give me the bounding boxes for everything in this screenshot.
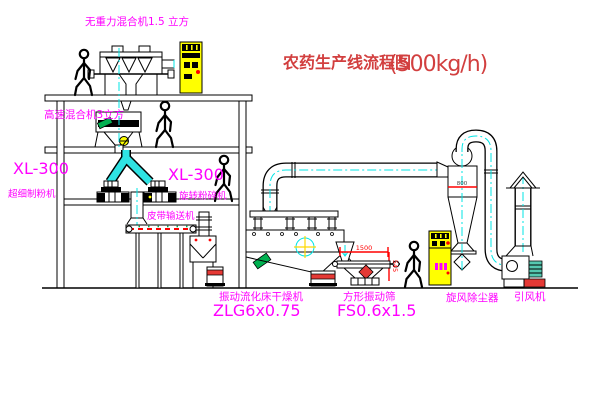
label-mill-left-model: XL-300 bbox=[13, 159, 69, 178]
control-cabinet-right bbox=[429, 231, 451, 285]
dim-cyclone-diameter: 800 bbox=[457, 181, 468, 187]
mill-right bbox=[144, 181, 176, 202]
label-mill-left-name: 超细制粉机 bbox=[8, 188, 56, 200]
label-dryer-model: ZLG6x0.75 bbox=[213, 301, 301, 320]
control-cabinet-top bbox=[180, 42, 202, 93]
page-title-capacity: (500kg/h) bbox=[389, 52, 487, 77]
diagram-canvas: 无重力混合机1.5 立方 农药生产线流程图 (500kg/h) 高速混合机3立方… bbox=[0, 0, 600, 403]
worker-figure-2 bbox=[156, 102, 173, 147]
gravity-mixer bbox=[88, 46, 174, 95]
belt-conveyor bbox=[126, 225, 196, 288]
label-belt-conveyor: 皮带输送机 bbox=[147, 210, 195, 222]
dryer-feed-hopper bbox=[190, 212, 225, 288]
y-feed-duct bbox=[110, 150, 150, 182]
label-mill-center-model: XL-300 bbox=[168, 165, 224, 184]
label-cyclone: 旋风除尘器 bbox=[446, 291, 499, 304]
fluid-bed-dryer bbox=[246, 211, 351, 286]
label-screen-model: FS0.6x1.5 bbox=[337, 301, 416, 320]
dryer-exhaust-duct bbox=[261, 162, 443, 215]
bolt-icon bbox=[195, 239, 198, 242]
mill-left bbox=[97, 181, 129, 202]
dim-screen-length: 1500 bbox=[356, 244, 373, 252]
indicator-light-icon bbox=[149, 196, 152, 199]
worker-figure-4 bbox=[405, 242, 422, 287]
worker-figure-1 bbox=[75, 50, 92, 95]
dim-screen-height: 545 bbox=[391, 260, 399, 272]
exhaust-stack bbox=[506, 172, 540, 252]
label-fan: 引风机 bbox=[514, 290, 546, 303]
indicator-light-icon bbox=[196, 70, 200, 74]
bolt-icon bbox=[209, 239, 212, 242]
induced-draft-fan bbox=[502, 246, 545, 287]
cad-flow-diagram: 无重力混合机1.5 立方 农药生产线流程图 (500kg/h) 高速混合机3立方… bbox=[0, 0, 600, 403]
label-gravity-mixer: 无重力混合机1.5 立方 bbox=[85, 15, 189, 28]
indicator-light-icon bbox=[446, 241, 450, 245]
label-high-speed-mixer: 高速混合机3立方 bbox=[44, 108, 124, 121]
indicator-light-icon bbox=[447, 272, 450, 275]
label-mill-center-name: 旋转粉碎机 bbox=[179, 190, 227, 202]
